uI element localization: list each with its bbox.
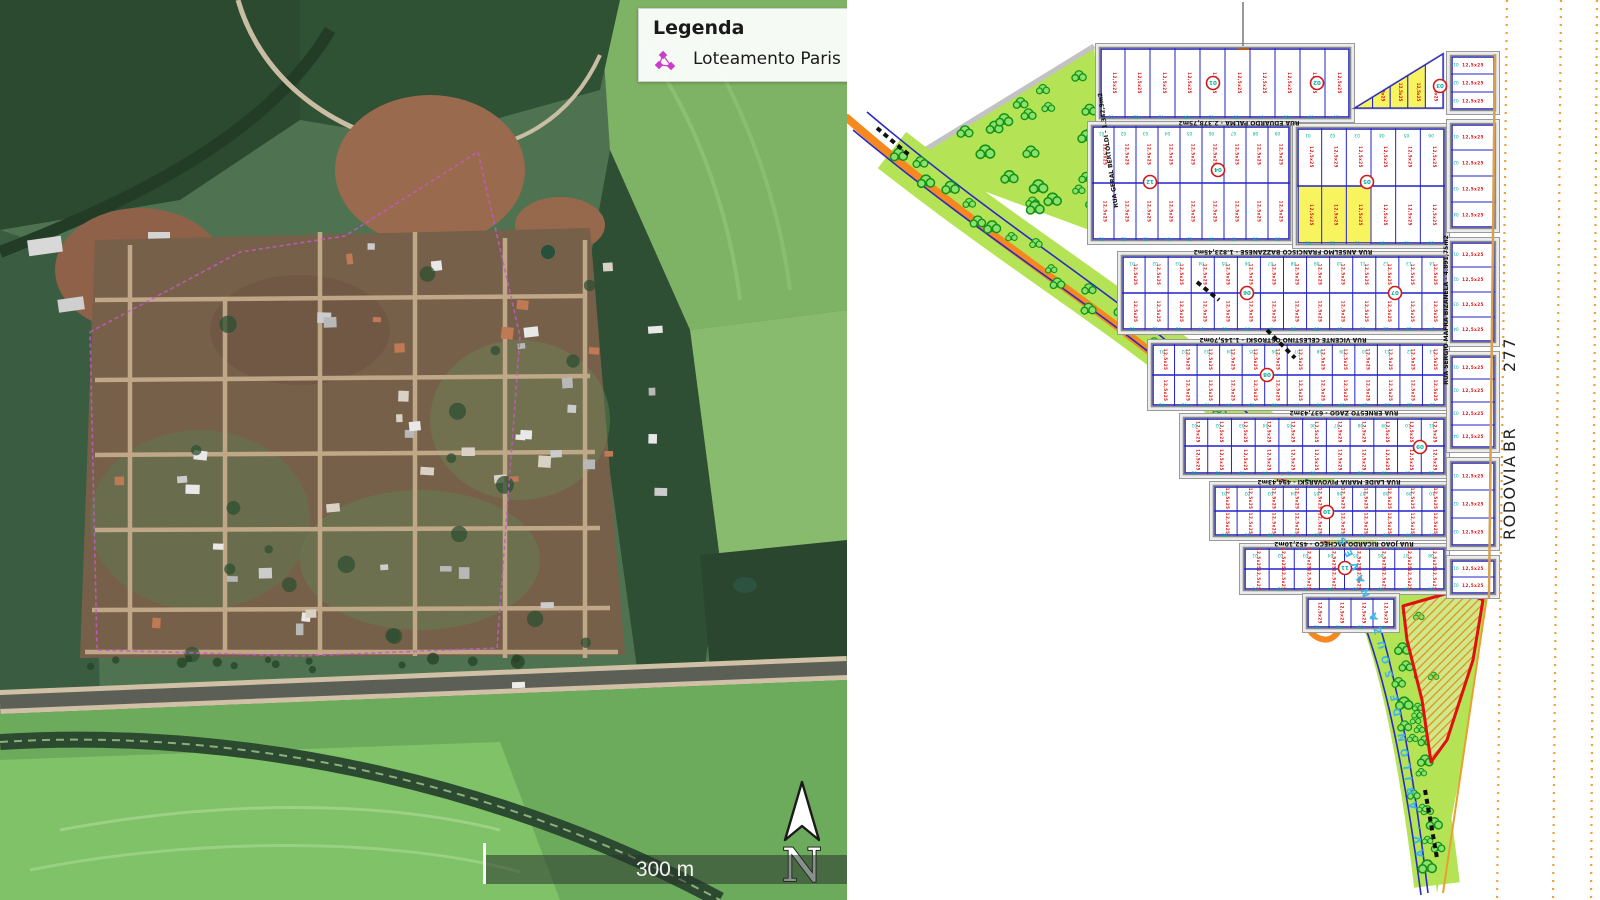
street-label: RUA EDUARDO PALMA - 2.378,75m2 <box>1179 119 1300 126</box>
svg-text:11: 11 <box>1429 422 1435 428</box>
svg-text:02: 02 <box>1453 583 1459 588</box>
scale-bar-label: 300 m <box>636 858 694 882</box>
svg-text:12,5x25: 12,5x25 <box>1271 513 1276 535</box>
svg-text:04: 04 <box>1165 236 1171 242</box>
svg-text:05: 05 <box>1208 114 1214 120</box>
svg-text:06: 06 <box>1244 326 1250 332</box>
svg-text:12,5x25: 12,5x25 <box>1462 583 1484 588</box>
svg-text:07: 07 <box>1258 114 1264 120</box>
svg-text:04: 04 <box>1290 490 1296 496</box>
svg-text:12,5x25: 12,5x25 <box>1187 72 1192 94</box>
svg-text:12,5x25: 12,5x25 <box>1314 449 1319 471</box>
svg-text:12,5x25: 12,5x25 <box>1213 201 1218 223</box>
svg-text:05: 05 <box>1286 422 1292 428</box>
svg-text:12,5x25: 12,5x25 <box>1225 264 1230 286</box>
svg-text:07: 07 <box>1294 402 1300 408</box>
svg-text:12,5x25: 12,5x25 <box>1248 301 1253 323</box>
svg-text:12,5x25: 12,5x25 <box>1337 72 1342 94</box>
svg-text:06: 06 <box>1337 490 1343 496</box>
svg-text:03: 03 <box>1267 490 1273 496</box>
svg-text:07: 07 <box>1360 532 1366 538</box>
svg-text:12,5x25: 12,5x25 <box>1133 301 1138 323</box>
svg-text:03: 03 <box>1354 240 1360 246</box>
svg-text:12,5x25: 12,5x25 <box>1410 513 1415 535</box>
svg-text:12,5x25: 12,5x25 <box>1398 83 1403 102</box>
svg-text:03: 03 <box>1204 348 1210 354</box>
svg-text:12,5x25: 12,5x25 <box>1462 213 1484 218</box>
svg-text:12,5x25: 12,5x25 <box>1279 201 1284 223</box>
svg-text:09: 09 <box>1416 443 1424 449</box>
svg-text:12,5x25: 12,5x25 <box>1462 434 1484 439</box>
block: 12,5x250112,5x250212,5x250312,5x2504 <box>1447 120 1500 233</box>
svg-text:04: 04 <box>1453 212 1459 217</box>
svg-text:12,5x25: 12,5x25 <box>1432 146 1437 168</box>
highway-label: 277 <box>1500 337 1519 372</box>
svg-text:09: 09 <box>1406 490 1412 496</box>
svg-text:01: 01 <box>1305 132 1311 138</box>
svg-text:12,5x25: 12,5x25 <box>1410 264 1415 286</box>
svg-text:12,5x25: 12,5x25 <box>1202 264 1207 286</box>
svg-text:05: 05 <box>1353 586 1359 592</box>
svg-text:12,5x25: 12,5x25 <box>1334 146 1339 168</box>
svg-text:02: 02 <box>1453 277 1459 282</box>
svg-text:01: 01 <box>1221 490 1227 496</box>
svg-text:07: 07 <box>1334 422 1340 428</box>
svg-text:12,5x25: 12,5x25 <box>1253 380 1258 402</box>
svg-text:08: 08 <box>1383 490 1389 496</box>
svg-text:09: 09 <box>1275 236 1281 242</box>
svg-text:01: 01 <box>1453 134 1459 139</box>
svg-text:07: 07 <box>1360 490 1366 496</box>
svg-text:12,5x25: 12,5x25 <box>1163 380 1168 402</box>
svg-text:12,5x25: 12,5x25 <box>1407 548 1412 570</box>
svg-text:05: 05 <box>1286 470 1292 476</box>
svg-text:12,5x25: 12,5x25 <box>1162 72 1167 94</box>
svg-text:04: 04 <box>1379 240 1385 246</box>
svg-text:12,5x25: 12,5x25 <box>1179 301 1184 323</box>
svg-text:01: 01 <box>1191 422 1197 428</box>
svg-text:12,5x25: 12,5x25 <box>1358 204 1363 226</box>
svg-text:12,5x25: 12,5x25 <box>1462 161 1484 166</box>
svg-text:12,5x25: 12,5x25 <box>1338 449 1343 471</box>
svg-text:01: 01 <box>1129 326 1135 332</box>
svg-text:12,5x25: 12,5x25 <box>1309 146 1314 168</box>
map-legend: Legenda Loteamento Paris <box>638 8 847 82</box>
svg-text:04: 04 <box>1263 470 1269 476</box>
svg-text:12,5x25: 12,5x25 <box>1364 264 1369 286</box>
svg-text:12,5x25: 12,5x25 <box>1462 411 1484 416</box>
svg-text:12: 12 <box>1146 178 1154 184</box>
svg-text:03: 03 <box>1175 260 1181 266</box>
svg-text:08: 08 <box>1291 326 1297 332</box>
svg-text:12,5x25: 12,5x25 <box>1366 380 1371 402</box>
satellite-map-panel[interactable]: Legenda Loteamento Paris N 300 m <box>0 0 847 900</box>
svg-text:12,5x25: 12,5x25 <box>1383 204 1388 226</box>
svg-text:03: 03 <box>1453 529 1459 534</box>
svg-text:12,5x25: 12,5x25 <box>1235 201 1240 223</box>
subdivision-plan[interactable]: 12,5x250112,5x250212,5x250312,5x250412,5… <box>847 0 1600 900</box>
svg-text:14: 14 <box>1429 260 1435 266</box>
svg-text:03: 03 <box>1453 186 1459 191</box>
legend-title: Legenda <box>653 17 847 39</box>
svg-text:12: 12 <box>1383 326 1389 332</box>
svg-text:05: 05 <box>1363 178 1371 184</box>
svg-text:12,5x25: 12,5x25 <box>1112 72 1117 94</box>
svg-text:09: 09 <box>1308 114 1314 120</box>
svg-text:12,5x25: 12,5x25 <box>1408 146 1413 168</box>
block: 12,5x250112,5x250212,5x250312,5x2504 <box>1303 594 1400 633</box>
svg-text:01: 01 <box>1453 252 1459 257</box>
svg-text:12,5x25: 12,5x25 <box>1267 449 1272 471</box>
svg-text:10: 10 <box>1405 422 1411 428</box>
svg-text:07: 07 <box>1231 236 1237 242</box>
svg-text:09: 09 <box>1406 532 1412 538</box>
svg-text:09: 09 <box>1339 348 1345 354</box>
block: 12,5x250112,5x250212,5x250312,5x250412,5… <box>1148 340 1450 411</box>
svg-text:12,5x25: 12,5x25 <box>1343 380 1348 402</box>
svg-text:12,5x25: 12,5x25 <box>1462 302 1484 307</box>
svg-text:08: 08 <box>1291 260 1297 266</box>
svg-text:12,5x25: 12,5x25 <box>1433 513 1438 535</box>
svg-text:12,5x25: 12,5x25 <box>1388 380 1393 402</box>
street-label: RUA LAIDE MARIA PIVOVARSKI - 494,43m2 <box>1257 478 1400 485</box>
svg-text:12,5x25: 12,5x25 <box>1208 380 1213 402</box>
svg-text:11: 11 <box>1384 348 1390 354</box>
svg-text:01: 01 <box>1453 566 1459 571</box>
svg-text:12,5x25: 12,5x25 <box>1340 602 1345 624</box>
highway-label: RODOVIA <box>1500 455 1519 540</box>
highway-dotted-line <box>1591 0 1597 900</box>
svg-text:12,5x25: 12,5x25 <box>1462 99 1484 104</box>
svg-text:13: 13 <box>1429 348 1435 354</box>
svg-text:12,5x25: 12,5x25 <box>1433 380 1438 402</box>
svg-text:12,5x25: 12,5x25 <box>1147 144 1152 166</box>
svg-text:12: 12 <box>1383 260 1389 266</box>
svg-text:08: 08 <box>1253 130 1259 136</box>
svg-text:12,5x25: 12,5x25 <box>1462 365 1484 370</box>
svg-text:07: 07 <box>1334 470 1340 476</box>
street-label: RUA ANSELMO FRANCISCO BAZZANESE - 1.823,… <box>1194 248 1373 255</box>
svg-text:01: 01 <box>1252 586 1258 592</box>
svg-text:07: 07 <box>1267 260 1273 266</box>
highway-label: BR <box>1500 427 1519 452</box>
street-label: RUA ERNESTO ZAGO - 637,43m2 <box>1290 409 1399 416</box>
svg-text:02: 02 <box>1133 114 1139 120</box>
svg-text:01: 01 <box>1108 114 1114 120</box>
yellow-triangle-block: 12,5x2512,5x2512,5x2512,5x2512,5x25 <box>1355 54 1443 108</box>
svg-text:05: 05 <box>1404 132 1410 138</box>
svg-text:13: 13 <box>1429 402 1435 408</box>
svg-text:11: 11 <box>1360 326 1366 332</box>
svg-text:12,5x25: 12,5x25 <box>1462 502 1484 507</box>
svg-text:12,5x25: 12,5x25 <box>1133 264 1138 286</box>
svg-text:12,5x25: 12,5x25 <box>1295 301 1300 323</box>
svg-text:12,5x25: 12,5x25 <box>1185 380 1190 402</box>
svg-text:12,5x25: 12,5x25 <box>1462 277 1484 282</box>
block: 12,5x250112,5x250212,5x250312,5x250412,5… <box>1088 122 1295 245</box>
svg-text:12,5x25: 12,5x25 <box>1257 201 1262 223</box>
svg-text:01: 01 <box>1129 260 1135 266</box>
legend-item-label: Loteamento Paris <box>693 49 841 69</box>
svg-text:04: 04 <box>1183 114 1189 120</box>
svg-text:06: 06 <box>1310 470 1316 476</box>
svg-text:12,5x25: 12,5x25 <box>1318 602 1323 624</box>
svg-text:12,5x25: 12,5x25 <box>1462 474 1484 479</box>
svg-text:13: 13 <box>1406 326 1412 332</box>
svg-text:12: 12 <box>1407 402 1413 408</box>
svg-text:06: 06 <box>1244 260 1250 266</box>
svg-text:12,5x25: 12,5x25 <box>1298 380 1303 402</box>
svg-text:02: 02 <box>1336 624 1342 630</box>
svg-text:12,5x25: 12,5x25 <box>1169 144 1174 166</box>
svg-text:06: 06 <box>1233 114 1239 120</box>
svg-text:04: 04 <box>1290 532 1296 538</box>
svg-text:12: 12 <box>1407 348 1413 354</box>
svg-text:08: 08 <box>1357 470 1363 476</box>
svg-text:01: 01 <box>1191 470 1197 476</box>
svg-text:14: 14 <box>1429 326 1435 332</box>
polygon-vertices-icon <box>653 47 681 71</box>
svg-text:12,5x25: 12,5x25 <box>1306 548 1311 570</box>
svg-text:12,5x25: 12,5x25 <box>1169 201 1174 223</box>
street-label: RUA VICENTE CELESTINO OSTROSKI - 1.145,7… <box>1199 336 1366 343</box>
svg-text:07: 07 <box>1403 586 1409 592</box>
svg-text:03: 03 <box>1175 326 1181 332</box>
svg-text:12,5x25: 12,5x25 <box>1433 264 1438 286</box>
svg-text:12,5x25: 12,5x25 <box>1287 72 1292 94</box>
svg-text:12,5x25: 12,5x25 <box>1147 201 1152 223</box>
svg-text:12,5x25: 12,5x25 <box>1243 449 1248 471</box>
svg-text:12,5x25: 12,5x25 <box>1387 301 1392 323</box>
svg-text:12,5x25: 12,5x25 <box>1191 144 1196 166</box>
svg-text:06: 06 <box>1243 289 1251 295</box>
svg-text:07: 07 <box>1294 348 1300 354</box>
svg-text:01: 01 <box>1314 624 1320 630</box>
svg-text:05: 05 <box>1221 326 1227 332</box>
plat-map-panel[interactable]: 12,5x250112,5x250212,5x250312,5x250412,5… <box>847 0 1600 900</box>
svg-text:03: 03 <box>1453 302 1459 307</box>
scale-bar-tick <box>483 843 486 884</box>
svg-text:04: 04 <box>1214 166 1222 172</box>
svg-text:05: 05 <box>1313 532 1319 538</box>
svg-text:01: 01 <box>1159 348 1165 354</box>
svg-text:02: 02 <box>1277 586 1283 592</box>
svg-text:02: 02 <box>1453 388 1459 393</box>
svg-text:05: 05 <box>1249 348 1255 354</box>
svg-text:05: 05 <box>1187 236 1193 242</box>
svg-text:02: 02 <box>1181 348 1187 354</box>
svg-text:12,5x25: 12,5x25 <box>1462 81 1484 86</box>
svg-text:07: 07 <box>1391 289 1399 295</box>
svg-text:10: 10 <box>1429 532 1435 538</box>
vehicle <box>512 682 525 688</box>
svg-text:12,5x25: 12,5x25 <box>1408 204 1413 226</box>
svg-text:07: 07 <box>1231 130 1237 136</box>
svg-text:12,5x25: 12,5x25 <box>1411 380 1416 402</box>
svg-text:04: 04 <box>1198 326 1204 332</box>
svg-text:12,5x25: 12,5x25 <box>1364 301 1369 323</box>
svg-text:12,5x25: 12,5x25 <box>1462 252 1484 257</box>
svg-text:12,5x25: 12,5x25 <box>1225 513 1230 535</box>
svg-text:10: 10 <box>1337 260 1343 266</box>
svg-text:10: 10 <box>1362 402 1368 408</box>
svg-text:09: 09 <box>1314 260 1320 266</box>
svg-text:04: 04 <box>1263 422 1269 428</box>
svg-text:12,5x25: 12,5x25 <box>1432 548 1437 570</box>
svg-text:12,5x25: 12,5x25 <box>1409 449 1414 471</box>
svg-text:12,5x25: 12,5x25 <box>1462 388 1484 393</box>
svg-text:01: 01 <box>1453 62 1459 67</box>
svg-text:04: 04 <box>1453 434 1459 439</box>
svg-text:10: 10 <box>1323 508 1331 514</box>
north-arrow-icon <box>785 782 819 840</box>
svg-text:02: 02 <box>1453 160 1459 165</box>
highway-dotted-line <box>1553 0 1561 900</box>
svg-text:02: 02 <box>1215 470 1221 476</box>
svg-text:12,5x25: 12,5x25 <box>1318 301 1323 323</box>
svg-text:08: 08 <box>1263 371 1271 377</box>
svg-text:12,5x25: 12,5x25 <box>1432 204 1437 226</box>
svg-text:09: 09 <box>1339 402 1345 408</box>
svg-text:12,5x25: 12,5x25 <box>1318 264 1323 286</box>
svg-text:09: 09 <box>1314 326 1320 332</box>
svg-text:12,5x25: 12,5x25 <box>1387 513 1392 535</box>
satellite-imagery[interactable] <box>0 0 847 900</box>
svg-text:12,5x25: 12,5x25 <box>1275 380 1280 402</box>
svg-text:12,5x25: 12,5x25 <box>1410 301 1415 323</box>
map-comparison-view: Legenda Loteamento Paris N 300 m <box>0 0 1600 900</box>
svg-text:12,5x25: 12,5x25 <box>1125 144 1130 166</box>
svg-text:12,5x25: 12,5x25 <box>1219 449 1224 471</box>
svg-text:01: 01 <box>1453 473 1459 478</box>
svg-text:06: 06 <box>1271 348 1277 354</box>
svg-text:12,5x25: 12,5x25 <box>1341 301 1346 323</box>
svg-text:12,5x25: 12,5x25 <box>1281 548 1286 570</box>
svg-text:01: 01 <box>1221 532 1227 538</box>
svg-text:12,5x25: 12,5x25 <box>1341 264 1346 286</box>
svg-text:03: 03 <box>1158 114 1164 120</box>
svg-text:02: 02 <box>1152 326 1158 332</box>
svg-text:09: 09 <box>1381 470 1387 476</box>
svg-text:01: 01 <box>1159 402 1165 408</box>
svg-text:04: 04 <box>1165 130 1171 136</box>
svg-text:04: 04 <box>1453 327 1459 332</box>
svg-text:12,5x25: 12,5x25 <box>1462 135 1484 140</box>
svg-text:02: 02 <box>1121 130 1127 136</box>
svg-text:04: 04 <box>1226 348 1232 354</box>
svg-text:03: 03 <box>1358 624 1364 630</box>
svg-text:12,5x25: 12,5x25 <box>1271 264 1276 286</box>
svg-text:10: 10 <box>1333 114 1339 120</box>
svg-text:02: 02 <box>1453 501 1459 506</box>
svg-text:03: 03 <box>1267 532 1273 538</box>
svg-text:05: 05 <box>1187 130 1193 136</box>
svg-text:12,5x25: 12,5x25 <box>1137 72 1142 94</box>
svg-text:05: 05 <box>1404 240 1410 246</box>
svg-text:04: 04 <box>1226 402 1232 408</box>
svg-text:12,5x25: 12,5x25 <box>1364 513 1369 535</box>
svg-text:02: 02 <box>1453 80 1459 85</box>
legend-item: Loteamento Paris <box>653 47 847 71</box>
svg-text:12,5x25: 12,5x25 <box>1179 264 1184 286</box>
svg-text:12,5x25: 12,5x25 <box>1462 187 1484 192</box>
svg-text:08: 08 <box>1283 114 1289 120</box>
svg-text:02: 02 <box>1244 532 1250 538</box>
svg-text:02: 02 <box>1121 236 1127 242</box>
svg-text:12,5x25: 12,5x25 <box>1462 327 1484 332</box>
svg-text:03: 03 <box>1453 98 1459 103</box>
svg-text:03: 03 <box>1302 586 1308 592</box>
svg-text:12,5x25: 12,5x25 <box>1433 449 1438 471</box>
svg-text:08: 08 <box>1383 532 1389 538</box>
svg-text:12,5x25: 12,5x25 <box>1462 566 1484 571</box>
svg-text:10: 10 <box>1405 470 1411 476</box>
svg-text:12,5x25: 12,5x25 <box>1334 204 1339 226</box>
svg-text:01: 01 <box>1252 552 1258 558</box>
svg-text:12,5x25: 12,5x25 <box>1225 301 1230 323</box>
svg-text:12,5x25: 12,5x25 <box>1331 548 1336 570</box>
svg-text:04: 04 <box>1327 586 1333 592</box>
svg-text:08: 08 <box>1253 236 1259 242</box>
svg-text:12,5x25: 12,5x25 <box>1382 548 1387 570</box>
svg-text:12,5x25: 12,5x25 <box>1213 144 1218 166</box>
svg-text:06: 06 <box>1209 236 1215 242</box>
svg-text:02: 02 <box>1244 490 1250 496</box>
svg-text:03: 03 <box>1239 422 1245 428</box>
svg-text:02: 02 <box>1215 422 1221 428</box>
svg-text:09: 09 <box>1275 130 1281 136</box>
svg-text:12,5x25: 12,5x25 <box>1309 204 1314 226</box>
svg-text:03: 03 <box>1204 402 1210 408</box>
svg-text:12,5x25: 12,5x25 <box>1433 301 1438 323</box>
svg-text:12,5x25: 12,5x25 <box>1256 548 1261 570</box>
svg-text:12,5x25: 12,5x25 <box>1385 449 1390 471</box>
svg-text:03: 03 <box>1143 236 1149 242</box>
block: 12,5x250112,5x2502 <box>1447 556 1500 599</box>
svg-text:06: 06 <box>1271 402 1277 408</box>
svg-text:03: 03 <box>1354 132 1360 138</box>
svg-text:04: 04 <box>1198 260 1204 266</box>
svg-text:02: 02 <box>1152 260 1158 266</box>
svg-text:12,5x25: 12,5x25 <box>1416 83 1421 102</box>
svg-text:12,5x25: 12,5x25 <box>1271 301 1276 323</box>
svg-text:06: 06 <box>1378 552 1384 558</box>
block: 12,5x250112,5x250212,5x2503 <box>1447 52 1500 115</box>
svg-text:12,5x25: 12,5x25 <box>1321 380 1326 402</box>
svg-text:10: 10 <box>1337 326 1343 332</box>
svg-text:09: 09 <box>1381 422 1387 428</box>
svg-text:12,5x25: 12,5x25 <box>1358 146 1363 168</box>
svg-text:12,5x25: 12,5x25 <box>1383 146 1388 168</box>
svg-text:03: 03 <box>1302 552 1308 558</box>
svg-text:12,5x25: 12,5x25 <box>1156 301 1161 323</box>
svg-text:08: 08 <box>1357 422 1363 428</box>
svg-text:12,5x25: 12,5x25 <box>1230 380 1235 402</box>
svg-text:12,5x25: 12,5x25 <box>1248 513 1253 535</box>
svg-text:11: 11 <box>1384 402 1390 408</box>
svg-text:05: 05 <box>1221 260 1227 266</box>
svg-text:12,5x25: 12,5x25 <box>1125 201 1130 223</box>
svg-text:13: 13 <box>1406 260 1412 266</box>
svg-text:12,5x25: 12,5x25 <box>1237 72 1242 94</box>
svg-text:01: 01 <box>1453 365 1459 370</box>
svg-text:12,5x25: 12,5x25 <box>1387 264 1392 286</box>
svg-text:08: 08 <box>1317 402 1323 408</box>
svg-text:12,5x25: 12,5x25 <box>1235 144 1240 166</box>
block: 12,5x250112,5x250212,5x250312,5x250412,5… <box>1180 414 1450 479</box>
svg-text:06: 06 <box>1428 132 1434 138</box>
svg-text:08: 08 <box>1428 586 1434 592</box>
